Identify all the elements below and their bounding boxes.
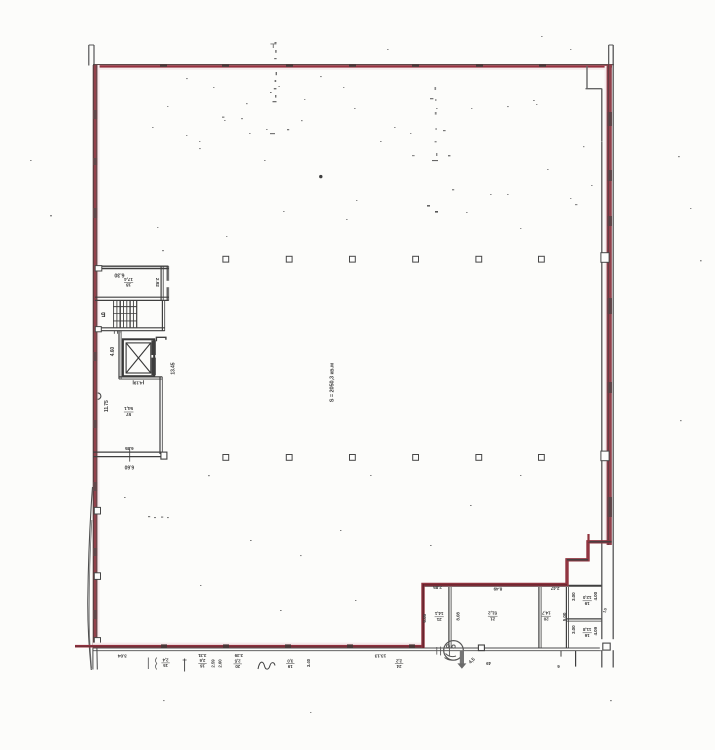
svg-text:14,7: 14,7 (541, 611, 550, 616)
svg-text:2,4: 2,4 (162, 658, 168, 663)
svg-text:6.35: 6.35 (125, 446, 134, 451)
svg-text:49: 49 (486, 661, 491, 666)
svg-text:24: 24 (396, 664, 401, 669)
svg-text:1,5: 1,5 (602, 608, 607, 614)
svg-text:3.00: 3.00 (571, 592, 576, 601)
svg-text:2,5: 2,5 (234, 659, 240, 664)
svg-text:2.92: 2.92 (154, 278, 160, 287)
svg-text:6.60: 6.60 (124, 463, 134, 469)
svg-text:15: 15 (163, 663, 168, 668)
svg-text:18: 18 (126, 283, 131, 288)
svg-text:4.00: 4.00 (593, 591, 598, 600)
svg-text:2,6: 2,6 (199, 658, 205, 663)
svg-text:3.31: 3.31 (198, 653, 207, 658)
svg-text:17,4: 17,4 (124, 277, 133, 282)
svg-text:3.00: 3.00 (571, 625, 576, 634)
svg-text:3.40: 3.40 (306, 658, 311, 667)
svg-text:5.00: 5.00 (562, 612, 567, 621)
svg-text:2.85: 2.85 (433, 585, 442, 590)
svg-text:8.08: 8.08 (456, 612, 461, 621)
svg-text:16: 16 (584, 633, 589, 638)
svg-text:2.59: 2.59 (210, 659, 215, 668)
svg-text:6.30: 6.30 (114, 271, 124, 277)
svg-text:2,2: 2,2 (396, 658, 402, 663)
svg-text:4.60: 4.60 (110, 347, 116, 357)
svg-text:20: 20 (235, 664, 240, 669)
svg-text:3.39: 3.39 (234, 653, 243, 658)
svg-text:16: 16 (200, 664, 205, 669)
svg-text:11,8: 11,8 (583, 627, 592, 632)
svg-text:19: 19 (287, 664, 292, 669)
svg-text:12,0: 12,0 (582, 595, 591, 600)
svg-text:4.19: 4.19 (133, 380, 142, 385)
svg-text:51,2: 51,2 (488, 609, 497, 615)
svg-text:20: 20 (543, 616, 548, 621)
svg-text:19: 19 (584, 601, 589, 606)
svg-text:8.49: 8.49 (493, 586, 502, 591)
svg-text:Б: Б (101, 310, 106, 317)
svg-text:3.04: 3.04 (118, 652, 127, 658)
svg-text:4,5: 4,5 (468, 656, 477, 665)
svg-text:6.05: 6.05 (422, 613, 427, 622)
svg-text:3,0: 3,0 (287, 658, 293, 663)
svg-text:S = 2050,3 кв.м: S = 2050,3 кв.м (330, 363, 336, 402)
svg-text:54,1: 54,1 (124, 405, 133, 411)
svg-text:14,1: 14,1 (434, 611, 443, 616)
svg-text:11.75: 11.75 (104, 400, 110, 412)
svg-text:21: 21 (436, 617, 441, 622)
svg-text:2.47: 2.47 (550, 586, 559, 591)
svg-text:2.60: 2.60 (217, 659, 222, 668)
svg-text:13.13: 13.13 (374, 652, 386, 658)
svg-text:6: 6 (557, 664, 560, 669)
svg-text:4.09: 4.09 (593, 626, 598, 635)
svg-text:13.45: 13.45 (171, 362, 177, 374)
